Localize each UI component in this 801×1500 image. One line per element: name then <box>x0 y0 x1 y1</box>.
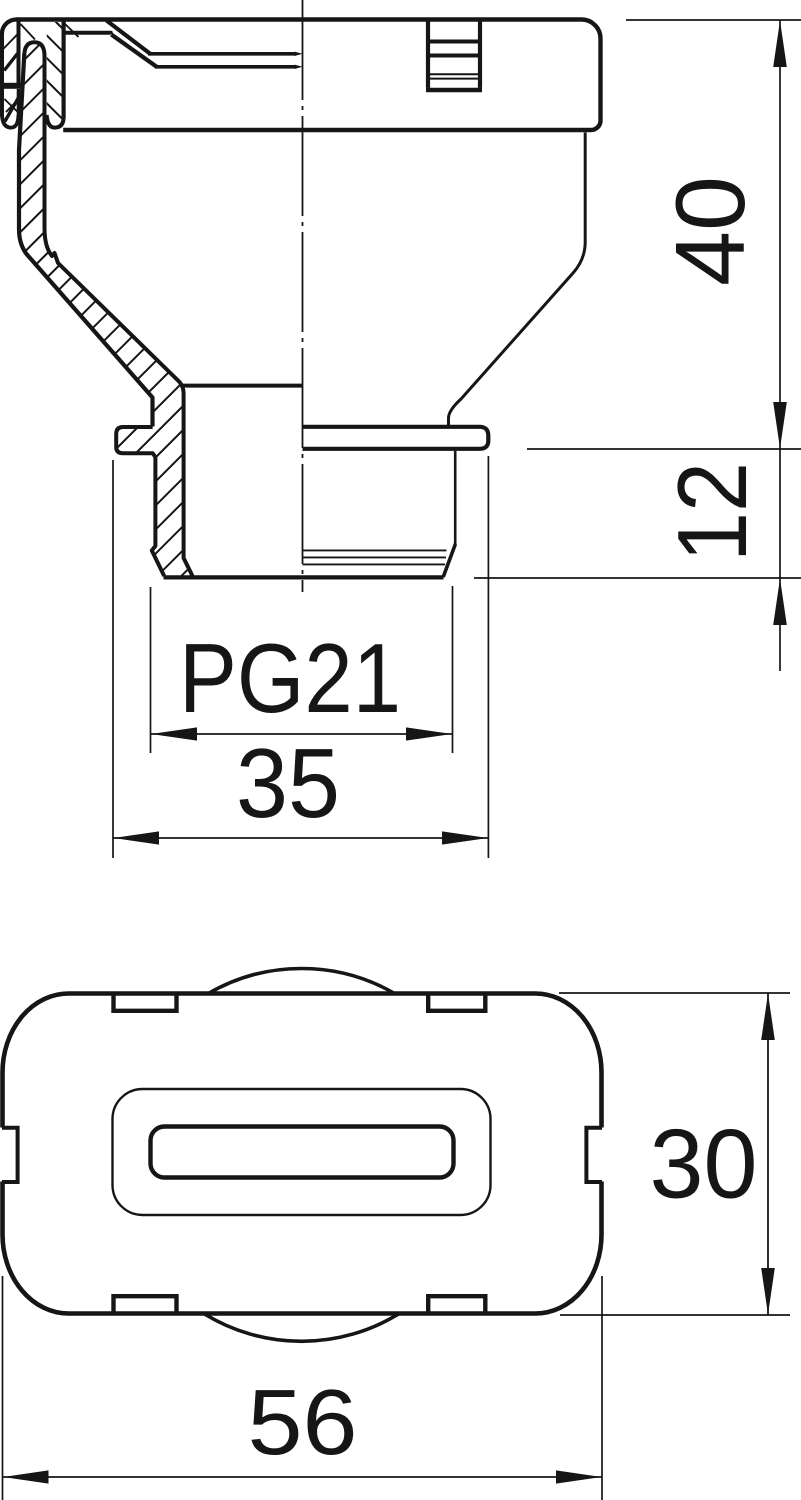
svg-text:40: 40 <box>655 176 765 286</box>
svg-text:56: 56 <box>248 1370 358 1474</box>
svg-text:35: 35 <box>236 728 340 838</box>
svg-text:12: 12 <box>657 462 767 562</box>
svg-text:PG21: PG21 <box>179 623 401 733</box>
svg-text:30: 30 <box>650 1109 758 1219</box>
